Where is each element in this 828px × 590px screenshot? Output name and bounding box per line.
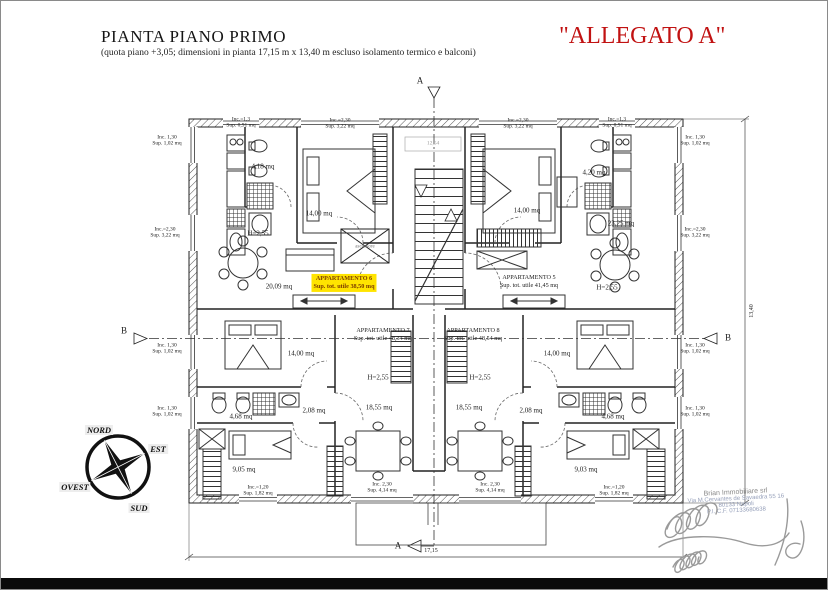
- drawing-sheet: PIANTA PIANO PRIMO (quota piano +3,05; d…: [0, 0, 828, 590]
- room-area-label: 18,55 mq: [456, 405, 482, 412]
- elevator-label: ascensore: [355, 245, 374, 250]
- section-arrow-b-right: [704, 333, 717, 344]
- room-area-label: 4,20 mq: [583, 170, 606, 177]
- room-area-label: H=2,55: [247, 231, 268, 238]
- apartment-label-2: APPARTAMENTO 5Sup. tot. utile 41,45 mq: [498, 273, 560, 291]
- shower: [585, 183, 611, 209]
- shower: [253, 393, 275, 415]
- apartment-label-3: APPARTAMENTO 7Sup. tot. utile 48,34 mq: [352, 326, 414, 344]
- entrance-projection: [356, 503, 546, 545]
- room-area-label: 9,03 mq: [575, 467, 598, 474]
- dimension-height: 13,40: [749, 304, 755, 318]
- sheet-bottom-bar: [1, 578, 828, 590]
- window-label: Sup. 1,02 mq: [680, 141, 709, 147]
- section-marker-b-right: B: [725, 334, 731, 343]
- section-arrow-b-left: [134, 333, 147, 344]
- window-label: Sup. 4,14 mq: [367, 488, 396, 494]
- window-label: Sup. 1,82 mq: [599, 491, 628, 497]
- window-label: Sup. 1,02 mq: [152, 349, 181, 355]
- apartment-label-4: APPARTAMENTO 8Sup. tot. utile 48,54 mq: [442, 326, 504, 344]
- section-marker-a-bottom: A: [395, 542, 402, 551]
- window-label: Sup. 1,02 mq: [680, 412, 709, 418]
- apartment-7-furniture: [199, 321, 411, 480]
- room-area-label: 14,00 mq: [544, 351, 570, 358]
- room-area-label: 4,68 mq: [230, 414, 253, 421]
- section-marker-a-top: A: [417, 77, 424, 86]
- room-area-label: 2,08 mq: [520, 408, 543, 415]
- window-label: Sup. 3,22 mq: [503, 124, 532, 130]
- window-label: Sup. 0,91 mq: [226, 123, 255, 129]
- window-label: Sup. 1,02 mq: [680, 349, 709, 355]
- double-bed: [303, 149, 375, 233]
- compass-south-label: SUD: [128, 503, 149, 513]
- armchair: [557, 177, 577, 207]
- apartment-label-1: APPARTAMENTO 6Sup. tot. utile 38,50 mq: [311, 274, 376, 292]
- section-arrow-a-top: [428, 87, 440, 98]
- section-arrow-a-bottom: [408, 540, 421, 552]
- room-area-label: 4,18 mq: [252, 164, 275, 171]
- landing-dim-label: 12,54: [427, 141, 439, 147]
- room-area-label: 23,25 mq: [608, 221, 634, 228]
- section-marker-b-left: B: [121, 327, 127, 336]
- room-area-label: 4,68 mq: [602, 414, 625, 421]
- dining-table: [356, 431, 400, 471]
- sink: [282, 395, 296, 405]
- window-label: Sup. 1,02 mq: [152, 141, 181, 147]
- window-label: Sup. 3,22 mq: [325, 124, 354, 130]
- apartment-8-furniture: [447, 321, 659, 480]
- window-label: Sup. 3,22 mq: [150, 233, 179, 239]
- window-label: Sup. 3,22 mq: [680, 233, 709, 239]
- window-label: Sup. 1,02 mq: [152, 412, 181, 418]
- window-label: Sup. 4,14 mq: [475, 488, 504, 494]
- room-area-label: 18,55 mq: [366, 405, 392, 412]
- dining-table: [458, 431, 502, 471]
- shower: [247, 183, 273, 209]
- room-area-label: H=2,55: [596, 285, 617, 292]
- room-area-label: 20,09 mq: [266, 284, 292, 291]
- room-area-label: 9,05 mq: [233, 467, 256, 474]
- wardrobe-striped: [477, 229, 541, 247]
- room-area-label: H=2,55: [469, 375, 490, 382]
- room-area-label: 14,00 mq: [288, 351, 314, 358]
- compass-rose: [87, 436, 149, 498]
- window-label: Sup. 1,82 mq: [243, 491, 272, 497]
- dimension-width: 17,15: [424, 548, 438, 554]
- room-area-label: 2,08 mq: [303, 408, 326, 415]
- window-label: Sup. 0,91 mq: [602, 123, 631, 129]
- compass-east-label: EST: [148, 444, 168, 454]
- sink: [562, 395, 576, 405]
- room-area-label: 14,00 mq: [514, 208, 540, 215]
- compass-west-label: OVEST: [59, 482, 90, 492]
- room-area-label: H=2,55: [367, 375, 388, 382]
- double-bed: [483, 149, 555, 233]
- compass-north-label: NORD: [85, 425, 113, 435]
- room-area-label: 14,00 mq: [306, 211, 332, 218]
- sofa: [286, 249, 334, 271]
- dining-table-round: [228, 248, 258, 278]
